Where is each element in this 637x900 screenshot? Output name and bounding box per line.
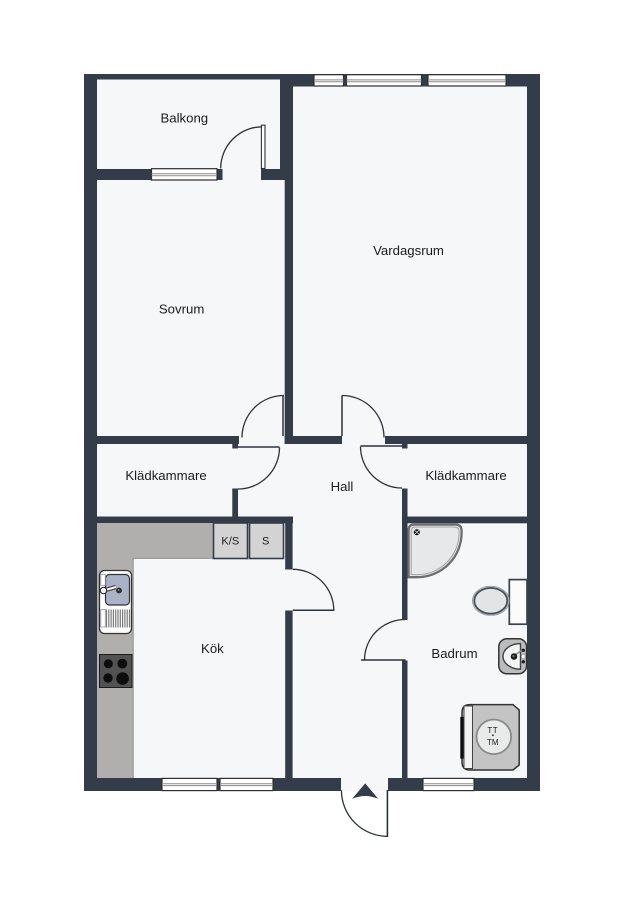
svg-text:Sovrum: Sovrum bbox=[159, 302, 204, 317]
svg-text:Klädkammare: Klädkammare bbox=[425, 468, 506, 483]
svg-text:Badrum: Badrum bbox=[431, 646, 477, 661]
svg-text:Hall: Hall bbox=[331, 479, 354, 494]
svg-text:TT: TT bbox=[487, 726, 498, 735]
svg-text:Kök: Kök bbox=[201, 641, 224, 656]
svg-text:Klädkammare: Klädkammare bbox=[125, 468, 206, 483]
svg-text:Vardagsrum: Vardagsrum bbox=[373, 243, 444, 258]
svg-text:TM: TM bbox=[487, 738, 499, 747]
svg-text:Balkong: Balkong bbox=[160, 111, 208, 126]
svg-text:S: S bbox=[262, 536, 269, 548]
svg-text:K/S: K/S bbox=[221, 536, 239, 548]
